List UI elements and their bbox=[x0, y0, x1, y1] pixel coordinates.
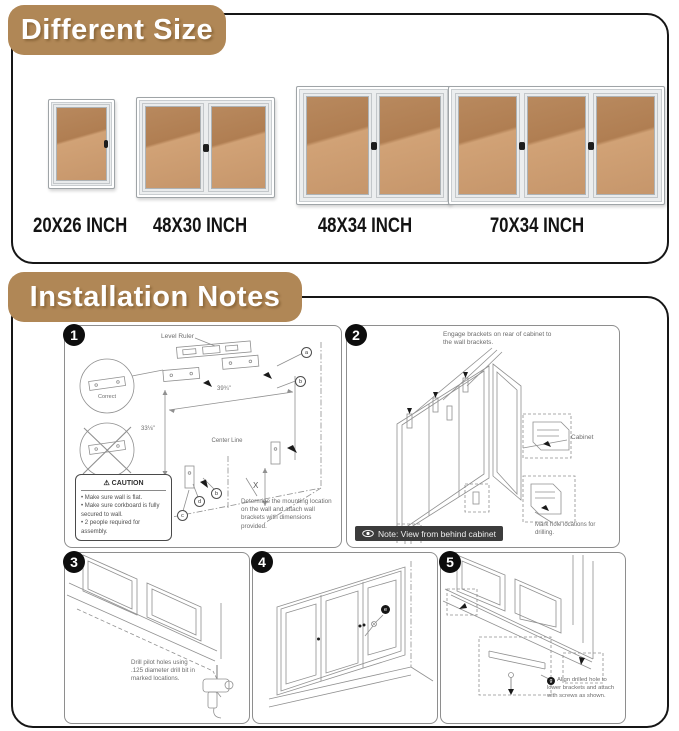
product-infographic: Different Size 20X26 INCH 48X30 INCH 48X… bbox=[0, 0, 679, 731]
eye-icon bbox=[362, 529, 374, 538]
callout-e: e bbox=[381, 605, 390, 614]
install-step-3-panel: 3 Drill pilot holes using .125 diamet bbox=[64, 552, 250, 724]
mark-holes-note: Mark hole locations for drilling. bbox=[535, 522, 611, 538]
corkboard-48x30 bbox=[136, 97, 275, 198]
height-dimension: 33⅛" bbox=[141, 426, 155, 434]
step-1-note: Determine the mounting location on the w… bbox=[241, 498, 335, 531]
view-note-text: Note: View from behind cabinet bbox=[378, 529, 496, 539]
step-3-instruction: Drill pilot holes using .125 diameter dr… bbox=[131, 659, 197, 683]
step-5-instruction-text: Align drilled hole to lower brackets and… bbox=[547, 677, 614, 699]
callout-a: a bbox=[301, 347, 312, 358]
drill-pilot-holes-diagram bbox=[65, 553, 246, 720]
callout-g: g bbox=[547, 677, 555, 685]
board-door bbox=[142, 103, 204, 192]
corkboard-20x26 bbox=[48, 99, 115, 189]
size-label-48x34: 48X34 INCH bbox=[313, 214, 417, 238]
callout-d: d bbox=[194, 496, 205, 507]
corkboard-48x34 bbox=[296, 86, 451, 205]
size-label-70x34: 70X34 INCH bbox=[485, 214, 589, 238]
caution-box: ⚠ CAUTION Make sure wall is flat. Make s… bbox=[75, 474, 172, 541]
board-door bbox=[455, 93, 520, 198]
different-size-title: Different Size bbox=[8, 5, 226, 55]
board-door bbox=[593, 93, 658, 198]
caution-item: 2 people required for assembly. bbox=[81, 519, 166, 536]
mounted-cabinet-diagram bbox=[253, 553, 434, 720]
caution-item: Make sure wall is flat. bbox=[81, 494, 166, 502]
caution-title-text: CAUTION bbox=[112, 480, 144, 487]
installation-notes-title-text: Installation Notes bbox=[30, 281, 281, 314]
board-door bbox=[524, 93, 589, 198]
caution-title: ⚠ CAUTION bbox=[81, 479, 166, 491]
board-door bbox=[53, 104, 110, 184]
caution-item: Make sure corkboard is fully secured to … bbox=[81, 502, 166, 519]
warning-icon: ⚠ bbox=[103, 480, 109, 487]
step-5-number-badge: 5 bbox=[439, 551, 461, 573]
view-note-badge: Note: View from behind cabinet bbox=[355, 526, 503, 541]
board-door bbox=[376, 93, 445, 198]
size-label-20x26: 20X26 INCH bbox=[33, 214, 121, 238]
callout-b: b bbox=[295, 376, 306, 387]
different-size-title-text: Different Size bbox=[21, 14, 213, 47]
callout-c: c bbox=[177, 510, 188, 521]
step-3-number-badge: 3 bbox=[63, 551, 85, 573]
installation-notes-title: Installation Notes bbox=[8, 272, 302, 322]
install-step-2-panel: 2 bbox=[346, 325, 620, 548]
size-label-48x30: 48X30 INCH bbox=[152, 214, 248, 238]
step-2-instruction: Engage brackets on rear of cabinet to th… bbox=[443, 331, 559, 348]
step-2-number-badge: 2 bbox=[345, 324, 367, 346]
step-4-number-badge: 4 bbox=[251, 551, 273, 573]
step-1-number-badge: 1 bbox=[63, 324, 85, 346]
install-step-4-panel: 4 e bbox=[252, 552, 438, 724]
level-ruler-label: Level Ruler bbox=[161, 333, 194, 341]
correct-label: Correct bbox=[93, 394, 121, 401]
width-dimension: 39¾" bbox=[217, 386, 231, 394]
step-5-instruction: gAlign drilled hole to lower brackets an… bbox=[547, 677, 617, 700]
callout-b2: b bbox=[211, 488, 222, 499]
x-dimension: X bbox=[253, 481, 258, 491]
install-step-1-panel: 1 bbox=[64, 325, 342, 548]
install-step-5-panel: 5 bbox=[440, 552, 626, 724]
board-door bbox=[208, 103, 270, 192]
board-door bbox=[303, 93, 372, 198]
center-line-label: Center Line bbox=[211, 438, 243, 446]
cabinet-label: Cabinet bbox=[571, 434, 593, 442]
corkboard-70x34 bbox=[448, 86, 665, 205]
